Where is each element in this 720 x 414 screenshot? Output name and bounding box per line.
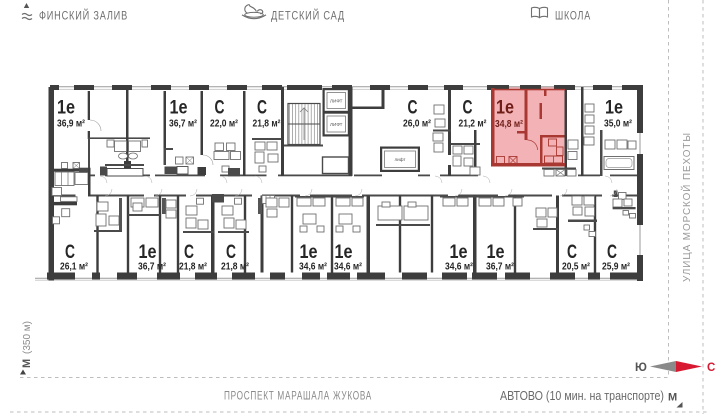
svg-text:1е: 1е bbox=[605, 98, 623, 119]
svg-text:25,9 м²: 25,9 м² bbox=[602, 262, 631, 273]
svg-text:1е: 1е bbox=[335, 242, 353, 263]
svg-text:21,8 м²: 21,8 м² bbox=[253, 119, 282, 130]
svg-text:22,0 м²: 22,0 м² bbox=[210, 119, 239, 130]
svg-text:С: С bbox=[184, 242, 194, 263]
svg-text:ПРОСПЕКТ МАРАШАЛА ЖУКОВА: ПРОСПЕКТ МАРАШАЛА ЖУКОВА bbox=[224, 391, 372, 403]
svg-text:36,7 м²: 36,7 м² bbox=[169, 119, 198, 130]
svg-text:ДЕТСКИЙ САД: ДЕТСКИЙ САД bbox=[271, 10, 345, 23]
svg-text:С: С bbox=[707, 362, 715, 374]
svg-text:1е: 1е bbox=[450, 242, 468, 263]
svg-text:С: С bbox=[607, 242, 617, 263]
svg-text:ЛИФТ: ЛИФТ bbox=[330, 98, 343, 103]
svg-text:1е: 1е bbox=[57, 98, 75, 119]
svg-text:35,0 м²: 35,0 м² bbox=[604, 119, 633, 130]
svg-text:ШКОЛА: ШКОЛА bbox=[555, 11, 591, 23]
svg-text:34,6 м²: 34,6 м² bbox=[445, 262, 474, 273]
svg-text:36,7 м²: 36,7 м² bbox=[138, 262, 167, 273]
svg-text:1е: 1е bbox=[487, 242, 505, 263]
svg-text:С: С bbox=[226, 242, 236, 263]
svg-text:Ю: Ю bbox=[635, 362, 647, 374]
svg-text:21,8 м²: 21,8 м² bbox=[221, 262, 250, 273]
svg-text:(350 м): (350 м) bbox=[21, 321, 33, 354]
svg-text:34,6 м²: 34,6 м² bbox=[334, 262, 363, 273]
svg-text:ФИНСКИЙ ЗАЛИВ: ФИНСКИЙ ЗАЛИВ bbox=[39, 10, 128, 23]
svg-text:21,2 м²: 21,2 м² bbox=[459, 119, 488, 130]
svg-text:С: С bbox=[65, 242, 75, 263]
svg-text:21,8 м²: 21,8 м² bbox=[179, 262, 208, 273]
svg-text:С: С bbox=[408, 98, 418, 119]
svg-text:АВТОВО (10 мин. на транспорте): АВТОВО (10 мин. на транспорте) bbox=[500, 389, 664, 403]
svg-text:1е: 1е bbox=[139, 242, 157, 263]
svg-text:1е: 1е bbox=[300, 242, 318, 263]
svg-text:36,7 м²: 36,7 м² bbox=[486, 262, 515, 273]
svg-text:34,8 м²: 34,8 м² bbox=[495, 119, 524, 130]
svg-text:УЛИЦА МОРСКОЙ ПЕХОТЫ: УЛИЦА МОРСКОЙ ПЕХОТЫ bbox=[680, 132, 693, 282]
svg-text:ЛИФТ: ЛИФТ bbox=[330, 122, 343, 127]
svg-text:1е: 1е bbox=[496, 98, 514, 119]
svg-text:С: С bbox=[463, 98, 473, 119]
svg-text:26,0 м²: 26,0 м² bbox=[403, 119, 432, 130]
svg-text:С: С bbox=[215, 98, 225, 119]
svg-text:лифт: лифт bbox=[394, 157, 406, 162]
svg-text:М: М bbox=[668, 392, 677, 404]
svg-text:34,6 м²: 34,6 м² bbox=[299, 262, 328, 273]
svg-text:М: М bbox=[21, 359, 33, 368]
svg-text:1е: 1е bbox=[170, 98, 188, 119]
svg-text:С: С bbox=[567, 242, 577, 263]
svg-text:20,5 м²: 20,5 м² bbox=[562, 262, 591, 273]
svg-text:С: С bbox=[257, 98, 267, 119]
svg-text:36,9 м²: 36,9 м² bbox=[57, 119, 86, 130]
svg-text:26,1 м²: 26,1 м² bbox=[60, 262, 89, 273]
